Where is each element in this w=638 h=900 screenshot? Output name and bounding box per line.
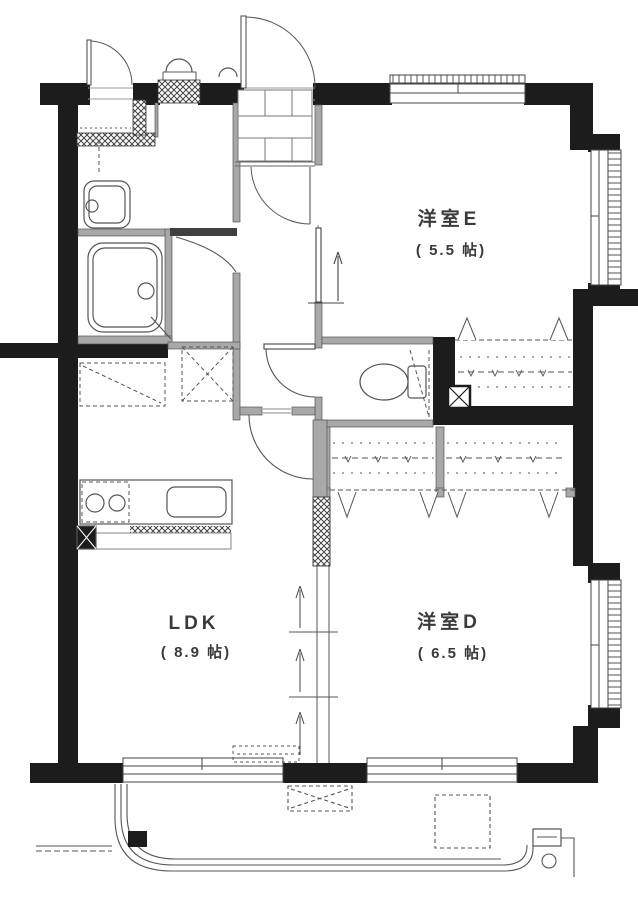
toilet-room [360, 350, 429, 417]
bathroom-top-wall [78, 229, 170, 236]
service-door-leaf [87, 40, 91, 85]
closets-room-d [330, 443, 575, 517]
balcony [36, 784, 574, 877]
wall-left [58, 83, 78, 783]
balcony-railing-inner [121, 784, 527, 865]
bathtub [88, 243, 162, 332]
bath-drain [138, 283, 154, 299]
toilet-tank [408, 366, 426, 398]
kitchen-pillar [77, 526, 96, 549]
bathroom-right-wall [165, 229, 172, 341]
toilet-bottom-wall [322, 420, 433, 427]
balcony-ac-space [288, 786, 352, 811]
hall-door-swing [251, 167, 310, 224]
floor-plan: 洋室E ( 5.5 帖) 洋室D ( 6.5 帖) LDK ( 8.9 帖) [0, 0, 638, 900]
ldk-door-swing [249, 415, 313, 479]
window-e-step-top [588, 134, 620, 152]
wall-right-mid [573, 306, 593, 566]
room-d-label: 洋室D [417, 610, 481, 633]
closet-e-bifold-2 [550, 318, 568, 340]
balcony-hatch-space [435, 795, 490, 848]
partition-head-wall [313, 420, 327, 497]
entry-side-line [155, 103, 158, 137]
window-e-right-hatch [608, 150, 621, 285]
room-e-label: 洋室E [418, 207, 481, 230]
kitchen-counter-lip [96, 533, 231, 549]
floor-plan-canvas: 洋室E ( 5.5 帖) 洋室D ( 6.5 帖) LDK ( 8.9 帖) [0, 0, 638, 900]
corridor-wall-right-2 [315, 302, 322, 348]
toilet-bowl [360, 364, 408, 400]
ldk-label: LDK [168, 613, 219, 634]
entry-door-leaf [241, 16, 246, 88]
corridor-wall-right-1 [315, 105, 322, 165]
shoe-tile-grid [238, 90, 312, 161]
wall-top-4 [313, 83, 392, 105]
fridge-space-dashed [80, 363, 165, 406]
partition-arrow-1 [296, 586, 304, 628]
washroom-bottom-wall [168, 342, 240, 349]
checker-wall-vertical [133, 100, 146, 135]
room-d-size: ( 6.5 帖) [418, 644, 488, 662]
closet-d-bifold-1 [338, 492, 356, 517]
corridor-wall-right-3 [315, 397, 322, 420]
balcony-railing-outer [115, 784, 533, 871]
closet-d-right [446, 443, 565, 473]
closet-d-bifold-2 [420, 492, 438, 517]
closet-pillar [448, 386, 470, 408]
closet-d-nub-r [566, 488, 575, 497]
drain-pipe-cap [542, 854, 556, 868]
drain-pipe-arm [561, 838, 574, 877]
wall-bottom-left [30, 763, 123, 783]
meter-box-arc-small [219, 68, 237, 77]
bathtub-inner [93, 248, 157, 327]
meter-box [158, 80, 200, 103]
partition-arrow-2 [296, 649, 304, 692]
sliding-partition [289, 497, 338, 763]
wall-top-3 [198, 83, 244, 105]
washroom-door-leaf [170, 228, 237, 236]
closet-d-left [332, 443, 434, 473]
closet-d-bifold-3 [448, 492, 466, 517]
toilet-door-swing [266, 349, 315, 397]
toilet-door-leaf [264, 344, 315, 349]
entry [87, 16, 315, 224]
entry-door-swing [246, 17, 315, 87]
corridor-bottom-wall-l [240, 407, 262, 415]
washbasin-faucet [86, 200, 98, 212]
closet-d-bifold-4 [540, 492, 558, 517]
washer-space-dashed [182, 347, 233, 401]
room-e-size: ( 5.5 帖) [416, 241, 486, 259]
closet-d-divider [436, 427, 444, 492]
window-d-right-hatch [608, 580, 621, 708]
room-e-door-panel [316, 228, 321, 302]
closet-e-bifold-1 [458, 318, 476, 340]
meter-box-lid [163, 72, 196, 80]
party-wall-right-stub [573, 289, 638, 306]
closet-room-e [448, 318, 575, 408]
washroom-door-swing [176, 237, 236, 272]
kitchen-front-hatch [130, 526, 231, 533]
wall-bottom-right [517, 763, 598, 783]
interior-walls [78, 103, 575, 497]
bathroom-bottom-wall [78, 336, 172, 344]
toilet-top-wall [322, 337, 433, 344]
meter-box-arc [166, 59, 192, 72]
ldk-size: ( 8.9 帖) [161, 643, 231, 661]
windows [123, 75, 621, 782]
service-door-swing [91, 41, 132, 85]
kitchen [77, 347, 233, 549]
room-e-door-arrow [334, 252, 342, 301]
window-e-top-hatch [390, 75, 525, 83]
partition-arrow-3 [296, 712, 304, 755]
corridor-bottom-wall-r [292, 407, 315, 415]
party-wall-left-stub [0, 343, 168, 358]
washbasin-bowl [89, 186, 125, 223]
closet-e-hooks [468, 370, 546, 376]
partition-pocket [313, 497, 330, 566]
wall-bottom-mid [283, 763, 367, 783]
